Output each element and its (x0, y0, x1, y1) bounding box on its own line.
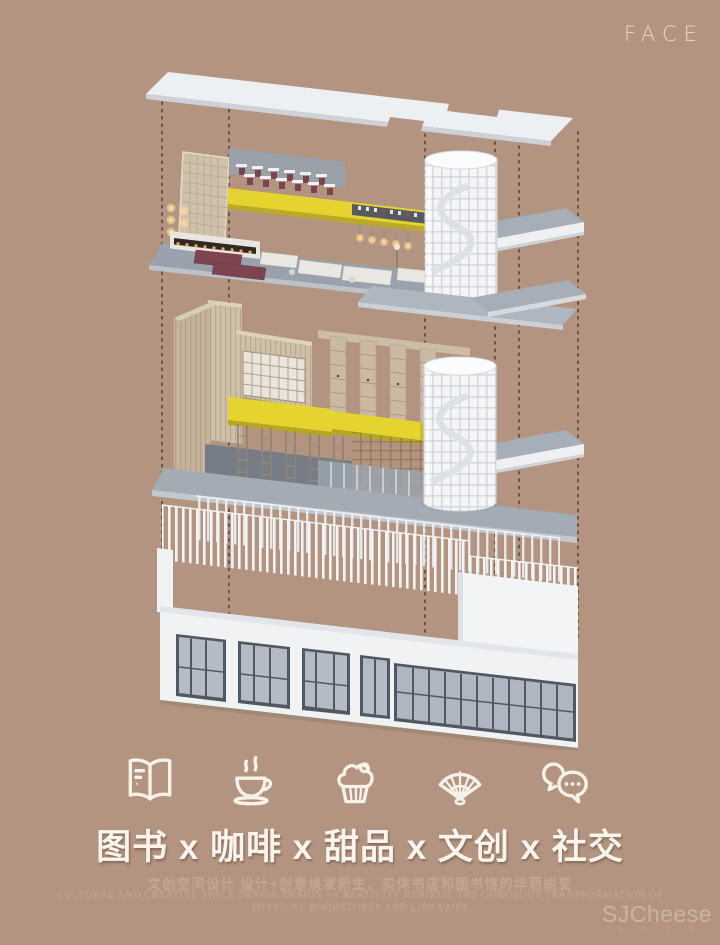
mezzanine-back-wall (229, 148, 345, 188)
fan-icon (430, 750, 490, 812)
watermark: SJCheese 9 0 2 1 (602, 901, 712, 934)
watermark-text: SJCheese (602, 901, 712, 928)
level-1-exterior (157, 496, 578, 750)
display-screen (179, 152, 229, 240)
exploded-axonometric-model (0, 50, 720, 750)
grid-window-wall (236, 330, 312, 408)
roof-slab (146, 72, 573, 146)
spiral-staircase-lower (422, 357, 498, 512)
watermark-sub: 9 0 2 1 (602, 927, 712, 934)
coffee-icon (221, 750, 281, 812)
book-icon (120, 750, 180, 812)
subtitle-english-line1: CULTURAL AND CREATIVE SPACE DESIGN DESIG… (0, 889, 720, 900)
spiral-staircase-upper (423, 151, 499, 302)
chat-icon (536, 752, 596, 814)
feature-title: 图书 x 咖啡 x 甜品 x 文创 x 社交 (0, 819, 720, 870)
cupcake-icon (325, 748, 385, 810)
poster: FACE · · · · · · · · · · · (0, 0, 720, 945)
feature-icons-row (0, 748, 720, 814)
brand-logo-text: FACE (613, 22, 708, 46)
pendant-lights (356, 226, 412, 250)
